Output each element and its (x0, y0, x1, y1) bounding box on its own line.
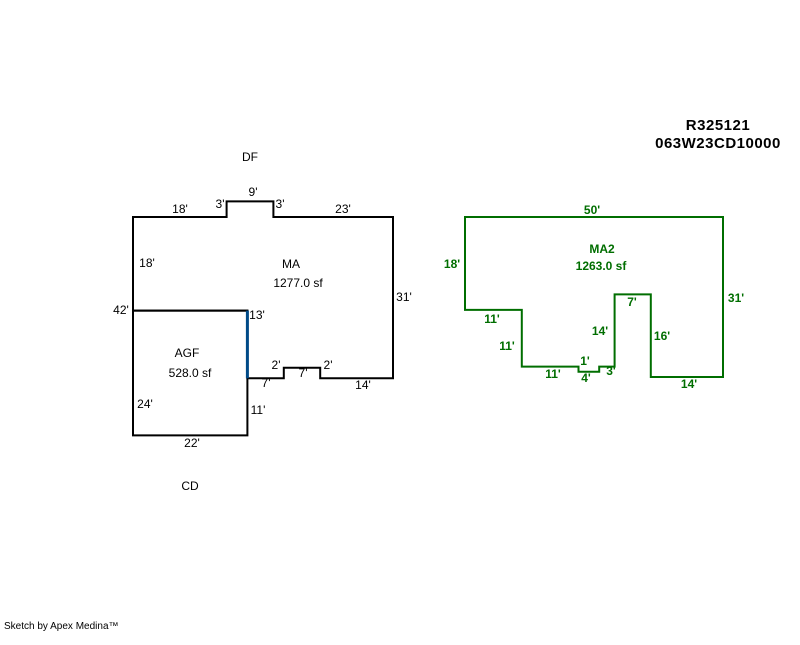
dim-label: 16' (654, 329, 670, 343)
dim-label: 11' (545, 367, 561, 381)
ma2-outline (465, 217, 723, 377)
dim-label: 2' (324, 358, 333, 372)
area-code-label: MA2 (589, 242, 615, 256)
dim-label: 3' (216, 197, 225, 211)
dim-label: 14' (355, 378, 371, 392)
dim-label: 2' (272, 358, 281, 372)
dim-label: 9' (249, 185, 258, 199)
dim-label: 7' (627, 295, 637, 309)
dim-label: 14' (681, 377, 697, 391)
dim-label: 23' (335, 202, 351, 216)
dim-label: 11' (499, 339, 515, 353)
area-size-label: 528.0 sf (169, 366, 212, 380)
dim-label: 42' (113, 303, 129, 317)
dim-label: 31' (728, 291, 744, 305)
annotation-label: DF (242, 150, 258, 164)
ma-outline (133, 201, 393, 378)
sketch-svg: DF18'3'9'3'23'18'42'MA1277.0 sf31'13'AGF… (0, 0, 800, 640)
annotation-label: CD (181, 479, 199, 493)
dim-label: 1' (580, 354, 590, 368)
area-size-label: 1263.0 sf (576, 259, 628, 273)
dim-label: 14' (592, 324, 608, 338)
dim-label: 24' (137, 397, 153, 411)
area-code-label: AGF (175, 346, 200, 360)
dim-label: 18' (444, 257, 460, 271)
dim-label: 18' (172, 202, 188, 216)
dim-label: 11' (484, 312, 500, 326)
dim-label: 13' (249, 308, 265, 322)
sketch-credit: Sketch by Apex Medina™ (4, 621, 119, 632)
dim-label: 31' (396, 290, 412, 304)
dim-label: 11' (251, 403, 266, 417)
sketch-canvas: DF18'3'9'3'23'18'42'MA1277.0 sf31'13'AGF… (0, 0, 800, 640)
area-size-label: 1277.0 sf (273, 276, 323, 290)
dim-label: 50' (584, 203, 600, 217)
dim-label: 3' (606, 364, 616, 378)
dim-label: 7' (299, 366, 308, 380)
dim-label: 22' (184, 436, 200, 450)
dim-label: 7' (262, 376, 271, 390)
dim-label: 4' (581, 371, 591, 385)
dim-label: 3' (276, 197, 285, 211)
dim-label: 18' (139, 256, 155, 270)
area-code-label: MA (282, 257, 300, 271)
